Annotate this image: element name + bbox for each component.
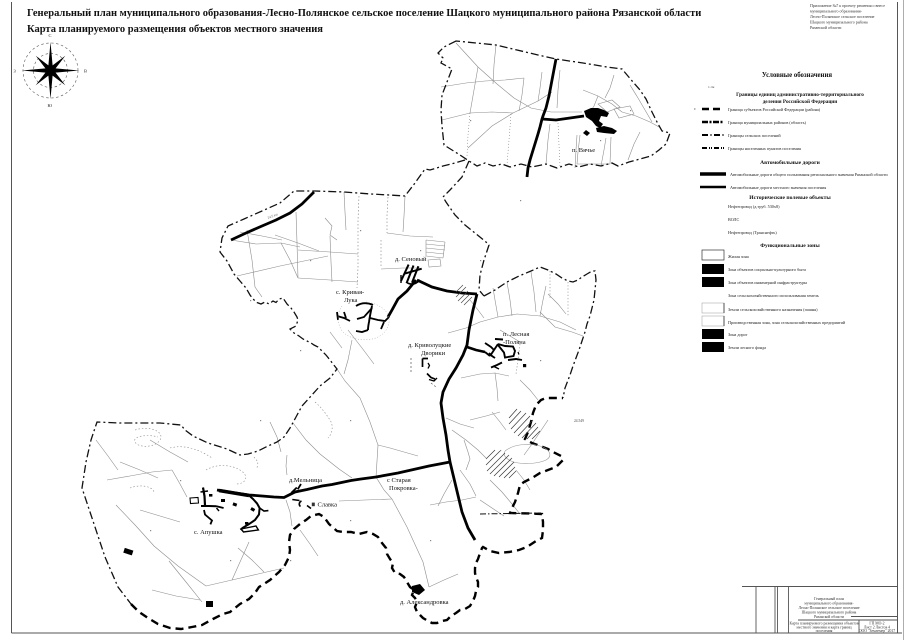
svg-text:Условные обозначения: Условные обозначения — [762, 72, 832, 79]
svg-text:Граница муниципальных районов: Граница муниципальных районов (область) — [728, 120, 806, 125]
svg-text:п. Лесная: п. Лесная — [503, 331, 529, 338]
svg-text:ВОЛС: ВОЛС — [728, 217, 739, 222]
svg-text:Жилая зона: Жилая зона — [728, 254, 749, 259]
svg-text:поселения: поселения — [816, 629, 833, 633]
svg-text:Приложение №7 к проекту решени: Приложение №7 к проекту решения о внесе — [810, 3, 885, 8]
svg-text:Автомобильные дороги: Автомобильные дороги — [760, 159, 820, 166]
svg-text:с. Апушка: с. Апушка — [194, 529, 223, 536]
svg-text:Зона объектов социально-культу: Зона объектов социально-культурного быта — [728, 267, 806, 272]
svg-text:Карта планируемого размещения: Карта планируемого размещения объектов м… — [27, 24, 323, 35]
svg-text:В: В — [84, 69, 87, 74]
svg-text:с: с — [694, 106, 696, 111]
svg-text:Покровка-: Покровка- — [389, 485, 418, 492]
svg-text:Зона сельскохозяйственного исп: Зона сельскохозяйственного использования… — [728, 293, 819, 298]
svg-text:д. Сеновый: д. Сеновый — [395, 256, 427, 263]
svg-text:Земли лесного фонда: Земли лесного фонда — [728, 345, 766, 350]
svg-text:Шацкого муниципального района: Шацкого муниципального района — [810, 20, 868, 25]
svg-text:Славка: Славка — [318, 502, 338, 509]
svg-text:Рязанской области: Рязанской области — [814, 615, 844, 619]
svg-text:Нефтепровод (д.труб. 530х8): Нефтепровод (д.труб. 530х8) — [728, 204, 780, 209]
svg-text:д. Криволуцкие: д. Криволуцкие — [408, 342, 451, 349]
svg-text:Граница субъектов Российской Ф: Граница субъектов Российской Федерации (… — [728, 107, 821, 112]
svg-text:Нефтепровод (Транснефть): Нефтепровод (Транснефть) — [728, 230, 777, 235]
svg-text:с Старая: с Старая — [387, 477, 411, 484]
svg-text:Автомобильные дороги общего по: Автомобильные дороги общего пользования … — [730, 172, 888, 177]
svg-text:д. Александровка: д. Александровка — [400, 599, 449, 606]
svg-text:Лесно-Полянское сельское посел: Лесно-Полянское сельское поселение — [798, 606, 859, 610]
svg-text:Зона объектов инженерной инфра: Зона объектов инженерной инфраструктуры — [728, 280, 807, 285]
svg-text:Шацкого муниципального района: Шацкого муниципального района — [802, 611, 857, 615]
svg-text:-Поляна: -Поляна — [503, 339, 526, 346]
svg-text:д.Мельница: д.Мельница — [289, 477, 322, 484]
svg-text:24.549: 24.549 — [574, 419, 584, 423]
svg-text:Автомобильные дороги местного: Автомобильные дороги местного значения п… — [730, 185, 826, 190]
svg-text:Лука: Лука — [344, 297, 358, 304]
svg-text:Дворики: Дворики — [421, 350, 446, 357]
svg-text:Функциональные зоны: Функциональные зоны — [760, 243, 820, 249]
svg-text:с. Кривая-: с. Кривая- — [336, 289, 364, 296]
svg-text:Исторические полевые объекты: Исторические полевые объекты — [749, 194, 831, 201]
svg-text:С: С — [49, 33, 52, 38]
svg-text:З: З — [14, 69, 16, 74]
svg-text:Генеральный план муниципальног: Генеральный план муниципального образова… — [27, 8, 701, 19]
svg-text:муниципального образования-: муниципального образования- — [810, 9, 863, 14]
svg-text:Границы единиц административно: Границы единиц административно-территори… — [736, 92, 864, 98]
svg-text:Границы сельских поселений: Границы сельских поселений — [728, 133, 781, 138]
svg-text:Генеральный план: Генеральный план — [814, 597, 844, 601]
svg-text:Границы населенных пунктов пос: Границы населенных пунктов поселения — [728, 146, 801, 151]
svg-text:1 см: 1 см — [708, 85, 715, 89]
svg-text:п. Вячье: п. Вячье — [572, 147, 595, 154]
svg-text:Лесно-Полянское сельское посел: Лесно-Полянское сельское поселение — [810, 14, 875, 19]
svg-text:Ю: Ю — [48, 103, 53, 108]
svg-text:ООО "Землемер" 2017: ООО "Землемер" 2017 — [859, 629, 895, 633]
svg-text:Зона дорог: Зона дорог — [728, 332, 748, 337]
svg-text:муниципального образования-: муниципального образования- — [804, 602, 854, 606]
svg-text:Рязанской области: Рязанской области — [810, 25, 842, 30]
svg-text:деления Российской Федерации: деления Российской Федерации — [763, 98, 838, 105]
svg-text:Земли сельскохозяйственного на: Земли сельскохозяйственного назначения (… — [728, 307, 818, 312]
